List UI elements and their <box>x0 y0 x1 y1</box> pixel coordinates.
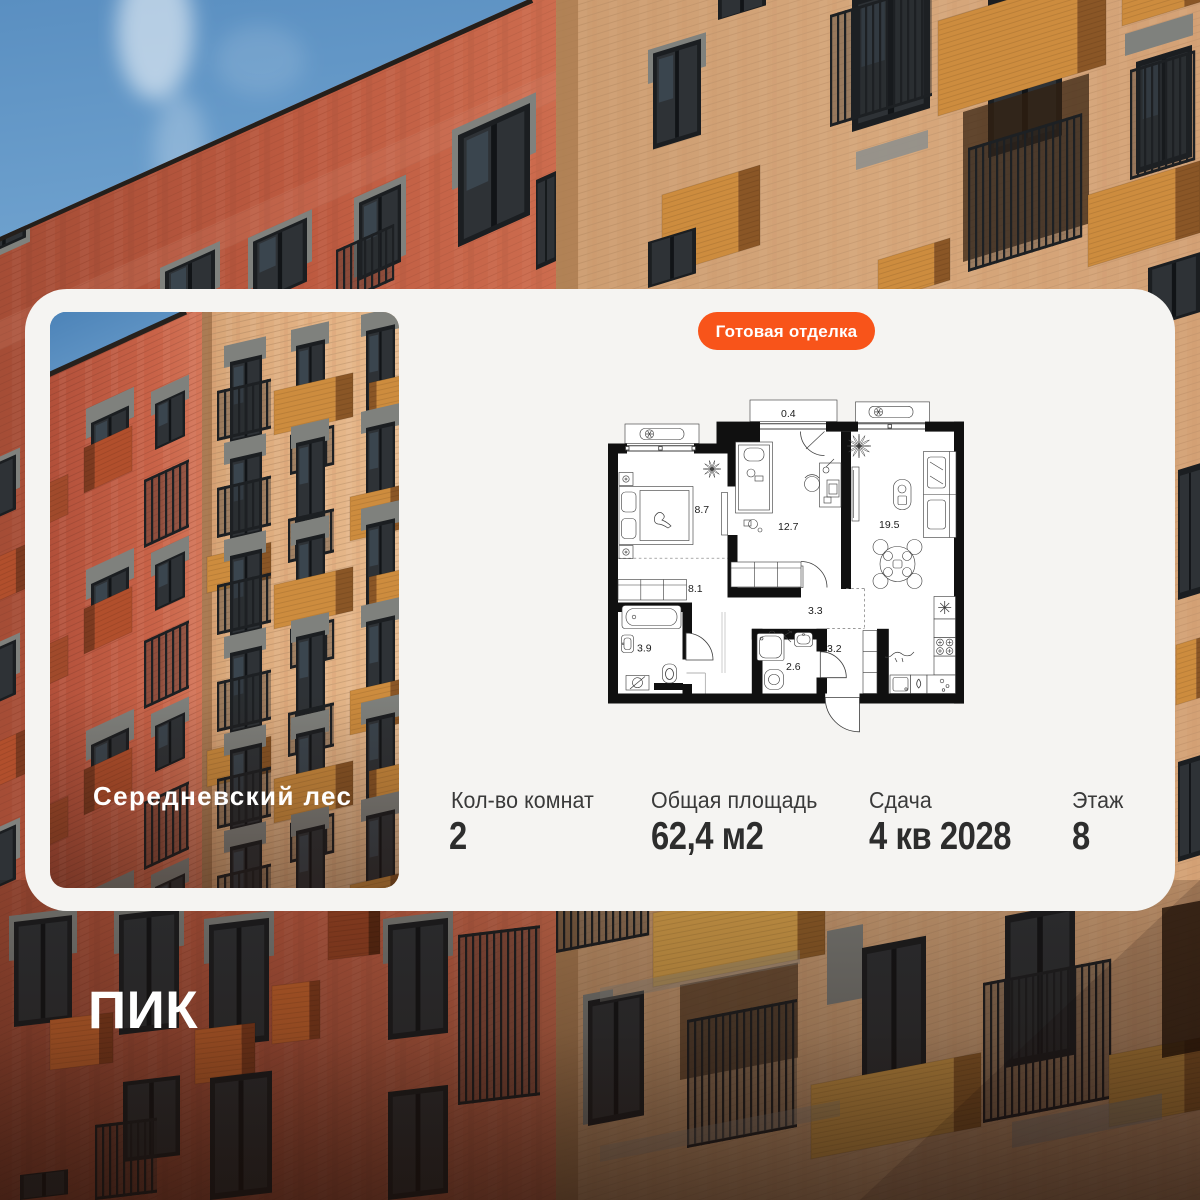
svg-text:8.7: 8.7 <box>695 504 710 516</box>
svg-text:2.6: 2.6 <box>786 661 801 673</box>
svg-text:12.7: 12.7 <box>778 521 799 533</box>
svg-text:3.9: 3.9 <box>637 643 652 655</box>
svg-text:19.5: 19.5 <box>879 519 900 531</box>
svg-text:8.1: 8.1 <box>688 583 703 595</box>
svg-text:3.2: 3.2 <box>827 643 842 655</box>
svg-text:0.4: 0.4 <box>781 408 796 420</box>
svg-text:3.3: 3.3 <box>808 605 823 617</box>
